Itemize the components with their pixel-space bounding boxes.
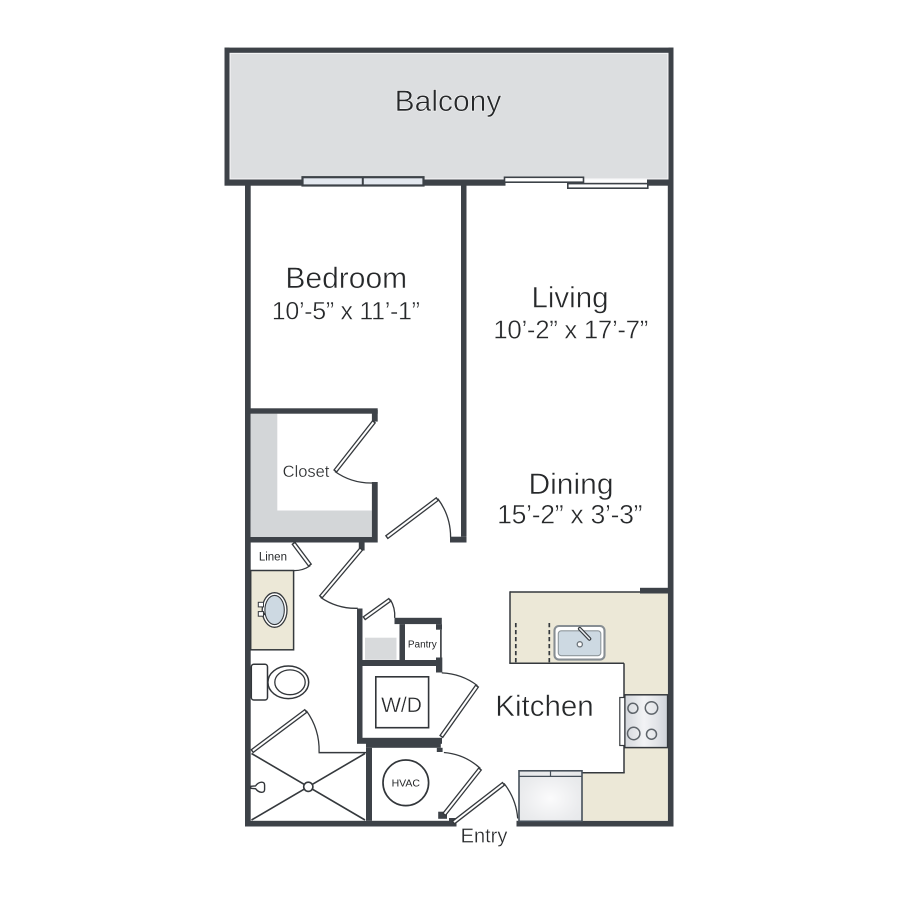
svg-text:Living: Living: [531, 282, 608, 315]
svg-text:HVAC: HVAC: [392, 778, 421, 790]
svg-text:Entry: Entry: [461, 826, 508, 848]
svg-text:Closet: Closet: [283, 463, 330, 481]
svg-text:Bedroom: Bedroom: [285, 262, 407, 295]
svg-text:Pantry: Pantry: [408, 639, 437, 650]
svg-text:10’-2” x 17’-7”: 10’-2” x 17’-7”: [493, 317, 648, 345]
svg-text:W/D: W/D: [381, 694, 422, 717]
svg-text:15’-2” x 3’-3”: 15’-2” x 3’-3”: [497, 500, 642, 530]
svg-text:Balcony: Balcony: [395, 85, 502, 118]
svg-text:Dining: Dining: [528, 468, 613, 501]
svg-text:10’-5” x 11’-1”: 10’-5” x 11’-1”: [272, 298, 420, 326]
svg-text:Kitchen: Kitchen: [495, 690, 593, 723]
svg-text:Linen: Linen: [259, 551, 287, 563]
